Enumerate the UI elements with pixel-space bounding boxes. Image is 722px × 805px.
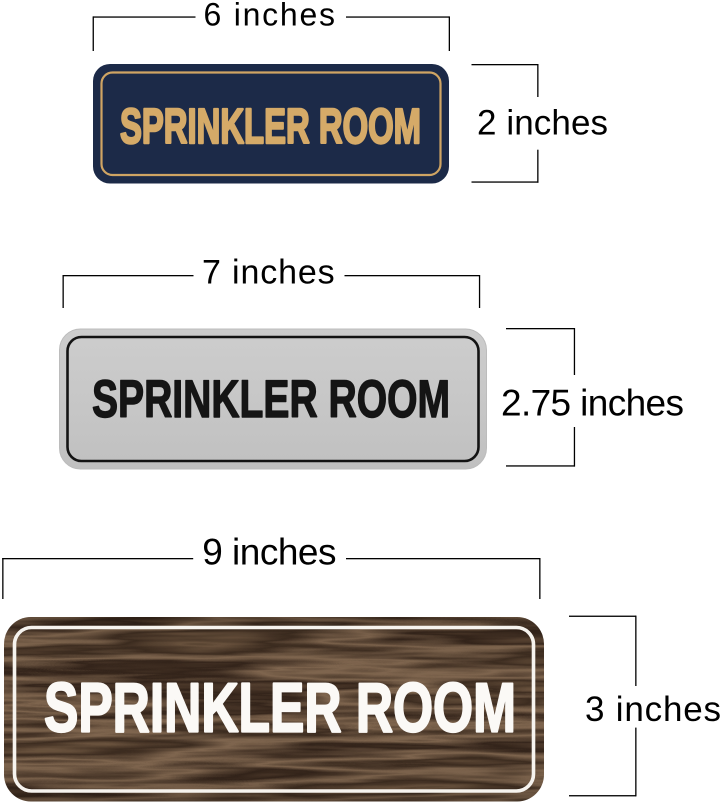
- svg-text:SPRINKLER ROOM: SPRINKLER ROOM: [120, 99, 421, 154]
- svg-text:3 inches: 3 inches: [585, 690, 721, 729]
- svg-text:SPRINKLER ROOM: SPRINKLER ROOM: [92, 370, 450, 429]
- svg-text:9 inches: 9 inches: [202, 531, 336, 572]
- svg-text:SPRINKLER ROOM: SPRINKLER ROOM: [44, 669, 516, 747]
- svg-text:7 inches: 7 inches: [202, 253, 335, 291]
- svg-text:2 inches: 2 inches: [477, 103, 608, 142]
- svg-text:6 inches: 6 inches: [204, 0, 336, 33]
- svg-text:2.75 inches: 2.75 inches: [501, 383, 684, 424]
